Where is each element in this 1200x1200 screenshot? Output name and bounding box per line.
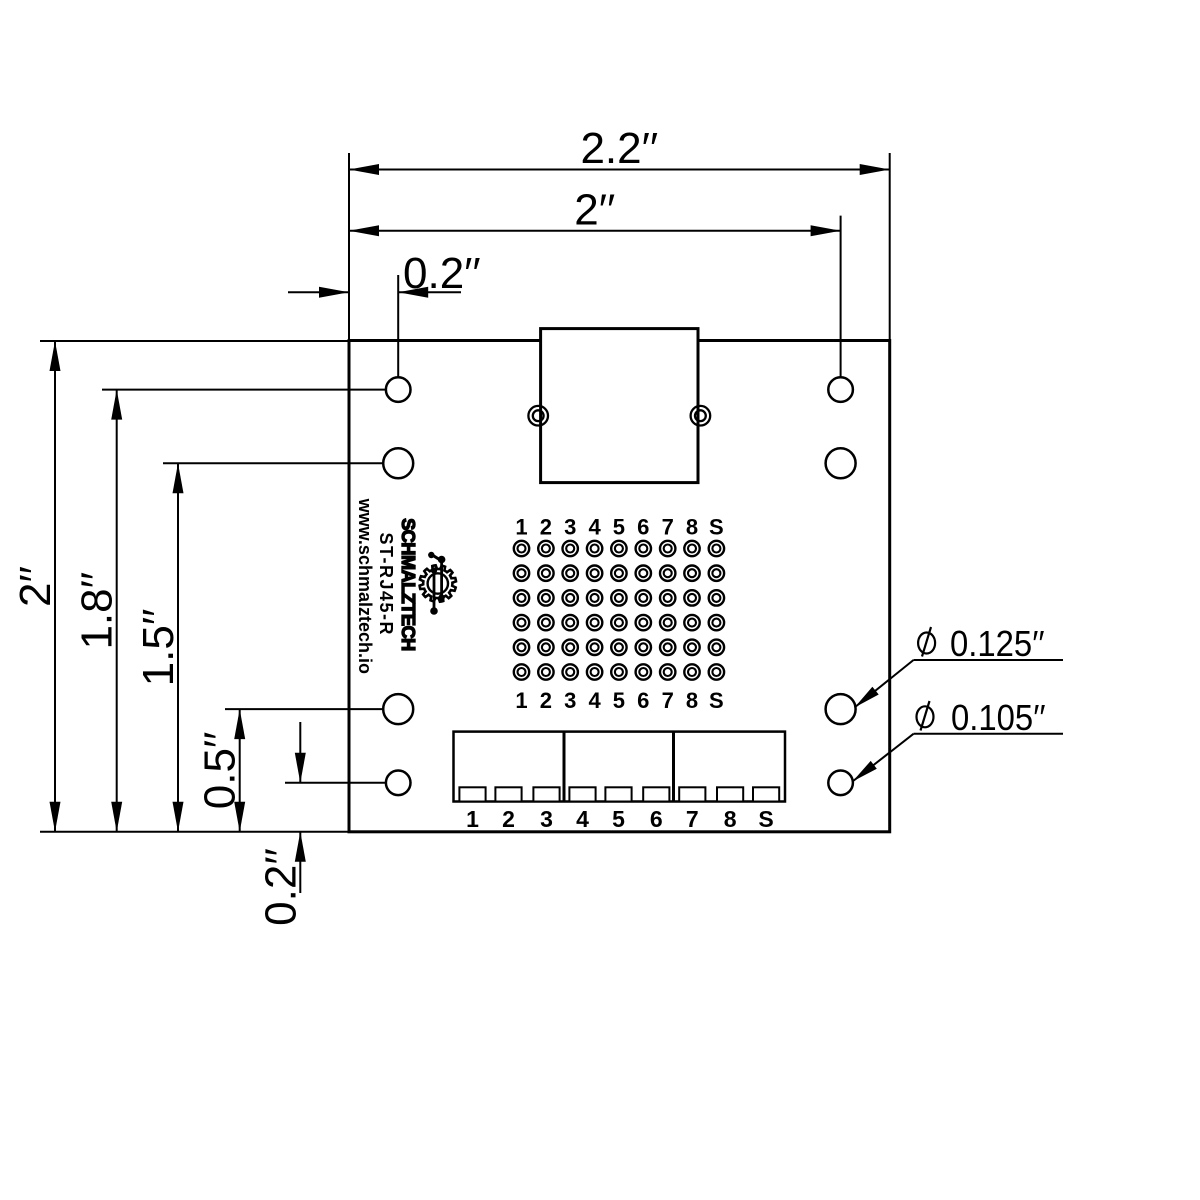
svg-text:4: 4 (576, 806, 589, 832)
svg-text:3: 3 (564, 688, 576, 713)
svg-text:6: 6 (650, 806, 663, 832)
svg-text:7: 7 (662, 688, 674, 713)
svg-text:S: S (709, 515, 724, 540)
svg-text:6: 6 (637, 515, 649, 540)
svg-text:0.5′′: 0.5′′ (196, 732, 245, 810)
svg-text:5: 5 (613, 515, 625, 540)
svg-text:4: 4 (588, 688, 601, 713)
svg-text:0.105′′: 0.105′′ (951, 698, 1046, 738)
svg-text:2.2′′: 2.2′′ (580, 124, 658, 173)
svg-text:0.2′′: 0.2′′ (256, 848, 305, 926)
svg-text:SCHMALZTECH: SCHMALZTECH (398, 518, 418, 651)
svg-text:2: 2 (540, 688, 552, 713)
svg-text:S: S (758, 806, 773, 832)
svg-text:1: 1 (466, 806, 479, 832)
svg-text:1.5′′: 1.5′′ (134, 609, 183, 687)
svg-text:3: 3 (540, 806, 553, 832)
svg-text:5: 5 (613, 688, 625, 713)
svg-text:3: 3 (564, 515, 576, 540)
svg-text:ST-RJ45-R: ST-RJ45-R (376, 533, 396, 637)
svg-text:7: 7 (662, 515, 674, 540)
svg-text:2′′: 2′′ (574, 185, 615, 234)
svg-text:5: 5 (612, 806, 625, 832)
svg-text:1: 1 (515, 688, 527, 713)
svg-text:8: 8 (686, 515, 698, 540)
svg-text:www.schmalztech.io: www.schmalztech.io (355, 498, 375, 674)
svg-text:4: 4 (588, 515, 601, 540)
svg-text:0.2′′: 0.2′′ (403, 249, 481, 298)
svg-text:S: S (709, 688, 724, 713)
svg-text:6: 6 (637, 688, 649, 713)
svg-text:2: 2 (502, 806, 515, 832)
svg-text:0.125′′: 0.125′′ (950, 624, 1045, 664)
svg-text:1: 1 (515, 515, 527, 540)
svg-text:7: 7 (686, 806, 699, 832)
svg-text:2′′: 2′′ (11, 566, 60, 607)
svg-text:8: 8 (686, 688, 698, 713)
svg-text:1.8′′: 1.8′′ (73, 572, 122, 650)
svg-text:2: 2 (540, 515, 552, 540)
svg-text:8: 8 (724, 806, 737, 832)
